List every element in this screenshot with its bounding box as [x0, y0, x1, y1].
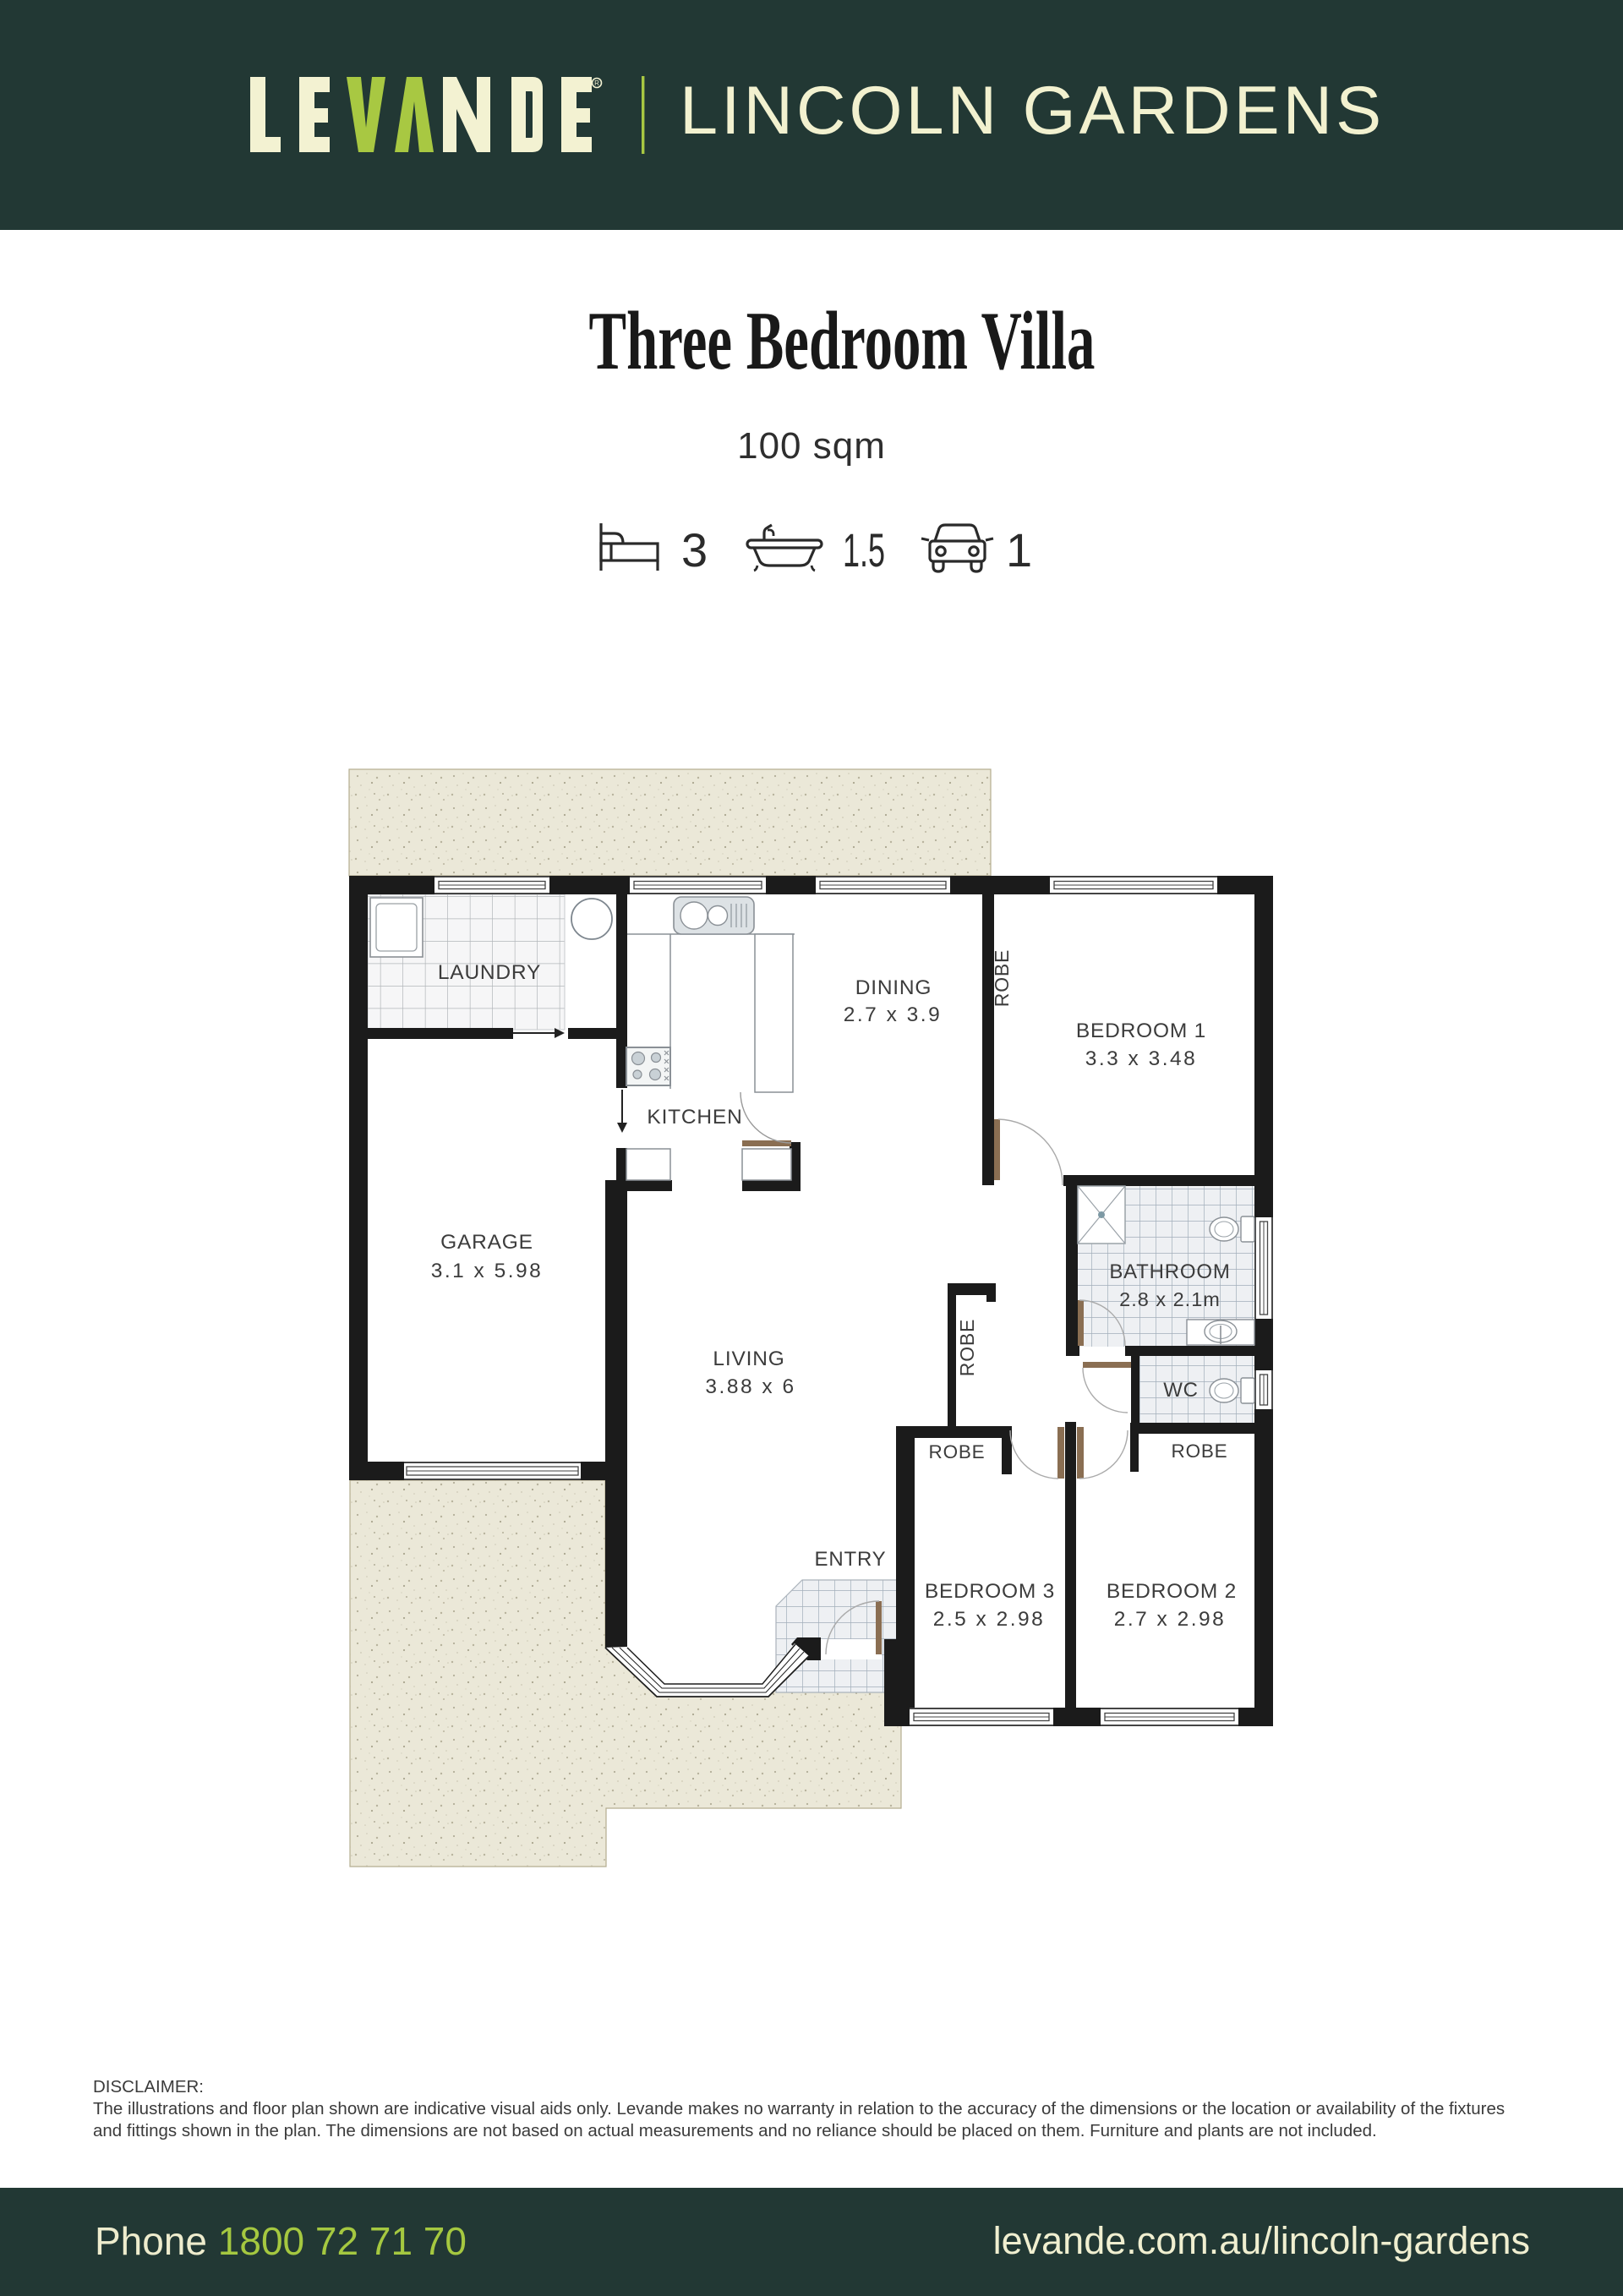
svg-text:3.1 x 5.98: 3.1 x 5.98: [431, 1260, 544, 1282]
svg-text:ROBE: ROBE: [1172, 1440, 1228, 1462]
svg-text:ENTRY: ENTRY: [815, 1548, 887, 1571]
svg-text:BEDROOM 3: BEDROOM 3: [925, 1580, 1055, 1603]
svg-text:2.8 x 2.1m: 2.8 x 2.1m: [1119, 1288, 1221, 1310]
svg-text:ROBE: ROBE: [929, 1441, 986, 1462]
svg-text:2.5 x 2.98: 2.5 x 2.98: [933, 1608, 1046, 1631]
svg-text:3.88 x 6: 3.88 x 6: [705, 1375, 795, 1398]
svg-text:LIVING: LIVING: [713, 1348, 784, 1370]
svg-text:DINING: DINING: [855, 976, 932, 999]
svg-text:BEDROOM 1: BEDROOM 1: [1076, 1020, 1206, 1042]
svg-text:GARAGE: GARAGE: [440, 1231, 533, 1254]
svg-text:ROBE: ROBE: [991, 949, 1013, 1007]
svg-text:BATHROOM: BATHROOM: [1109, 1260, 1230, 1283]
svg-text:LAUNDRY: LAUNDRY: [438, 961, 541, 984]
svg-text:ROBE: ROBE: [956, 1319, 978, 1376]
svg-text:BEDROOM 2: BEDROOM 2: [1107, 1580, 1237, 1603]
svg-text:2.7 x 2.98: 2.7 x 2.98: [1114, 1608, 1227, 1631]
svg-text:2.7 x 3.9: 2.7 x 3.9: [844, 1003, 942, 1026]
svg-text:3.3 x 3.48: 3.3 x 3.48: [1085, 1047, 1198, 1070]
svg-text:KITCHEN: KITCHEN: [647, 1106, 742, 1129]
svg-text:WC: WC: [1163, 1379, 1199, 1402]
